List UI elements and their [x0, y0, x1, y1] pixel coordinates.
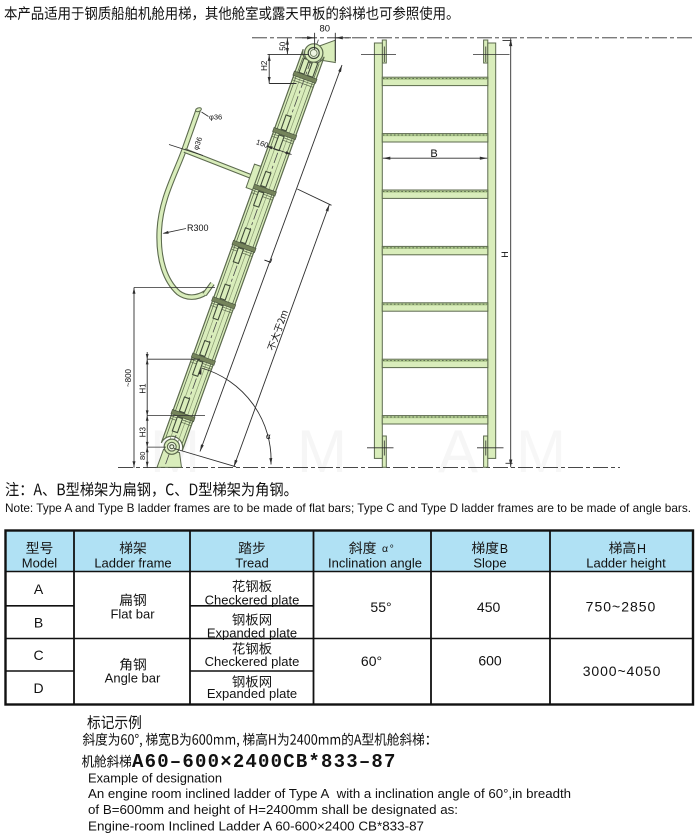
svg-text:An engine room inclined ladder: An engine room inclined ladder of Type A…	[88, 786, 571, 801]
svg-text:α: α	[266, 432, 271, 441]
svg-text:600: 600	[478, 653, 502, 669]
svg-text:H2: H2	[260, 60, 269, 71]
svg-text:450: 450	[477, 599, 501, 615]
svg-text:80: 80	[138, 452, 147, 460]
svg-text:Ladder frame: Ladder frame	[94, 556, 171, 571]
svg-text:B: B	[430, 148, 437, 160]
svg-text:B: B	[500, 542, 508, 556]
svg-text:D: D	[33, 680, 43, 696]
svg-text:H3: H3	[139, 427, 148, 438]
svg-text:A: A	[438, 418, 478, 485]
svg-text:Checkered plate: Checkered plate	[205, 593, 300, 608]
svg-text:55°: 55°	[370, 599, 391, 615]
svg-text:Tread: Tread	[235, 556, 268, 571]
svg-text:Note: Type A and Type B ladder: Note: Type A and Type B ladder frames ar…	[5, 501, 691, 515]
svg-text:C: C	[33, 647, 43, 663]
svg-text:Expanded plate: Expanded plate	[207, 626, 297, 641]
svg-text:Angle bar: Angle bar	[105, 671, 161, 686]
svg-text:of B=600mm and height of H=240: of B=600mm and height of H=2400mm shall …	[88, 802, 458, 817]
svg-text:~800: ~800	[124, 368, 133, 387]
svg-text:H: H	[500, 251, 510, 258]
svg-text:Ladder height: Ladder height	[586, 556, 666, 571]
svg-text:Checkered plate: Checkered plate	[205, 654, 300, 669]
svg-text:Model: Model	[22, 556, 58, 571]
svg-text:φ36: φ36	[209, 113, 222, 122]
svg-text:M: M	[516, 418, 566, 485]
svg-text:L: L	[263, 255, 275, 264]
svg-text:Inclination angle: Inclination angle	[328, 556, 422, 571]
svg-text:M: M	[297, 418, 347, 485]
svg-text:R300: R300	[187, 223, 209, 233]
svg-text:B: B	[34, 615, 43, 631]
svg-text:50: 50	[278, 41, 287, 50]
svg-text:750~2850: 750~2850	[586, 599, 657, 615]
svg-text:H: H	[637, 542, 646, 556]
svg-text:A: A	[34, 581, 44, 597]
svg-text:Expanded plate: Expanded plate	[207, 686, 297, 701]
svg-text:Slope: Slope	[473, 556, 506, 571]
svg-text:H1: H1	[139, 383, 148, 394]
svg-text:Engine-room Inclined Ladder A: Engine-room Inclined Ladder A 60-600×240…	[88, 818, 424, 833]
svg-text:80: 80	[320, 24, 331, 35]
svg-text:Flat bar: Flat bar	[110, 607, 155, 622]
svg-text:φ36: φ36	[191, 136, 204, 151]
svg-text:Example of designation: Example of designation	[88, 770, 222, 785]
svg-text:3000~4050: 3000~4050	[583, 663, 662, 679]
svg-text:α°: α°	[382, 543, 395, 555]
svg-text:60°: 60°	[361, 653, 382, 669]
